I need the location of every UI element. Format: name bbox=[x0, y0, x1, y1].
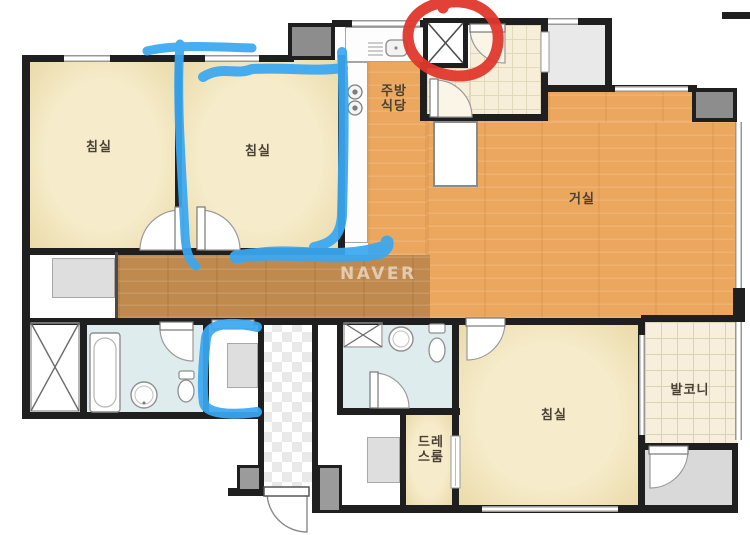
red-circle-annotation bbox=[408, 2, 498, 76]
floorplan: 침실 침실 주방 식당 거실 침실 발코니 드레 스룸 NAVER bbox=[0, 0, 750, 535]
blue-marker-vertical-right bbox=[314, 52, 344, 247]
annotation-layer bbox=[0, 0, 750, 535]
blue-marker-top-stroke1 bbox=[147, 47, 252, 52]
blue-marker-top-stroke2 bbox=[203, 68, 343, 77]
blue-marker-vertical-left bbox=[179, 44, 196, 266]
blue-marker-bathroom-bracket bbox=[203, 324, 257, 414]
